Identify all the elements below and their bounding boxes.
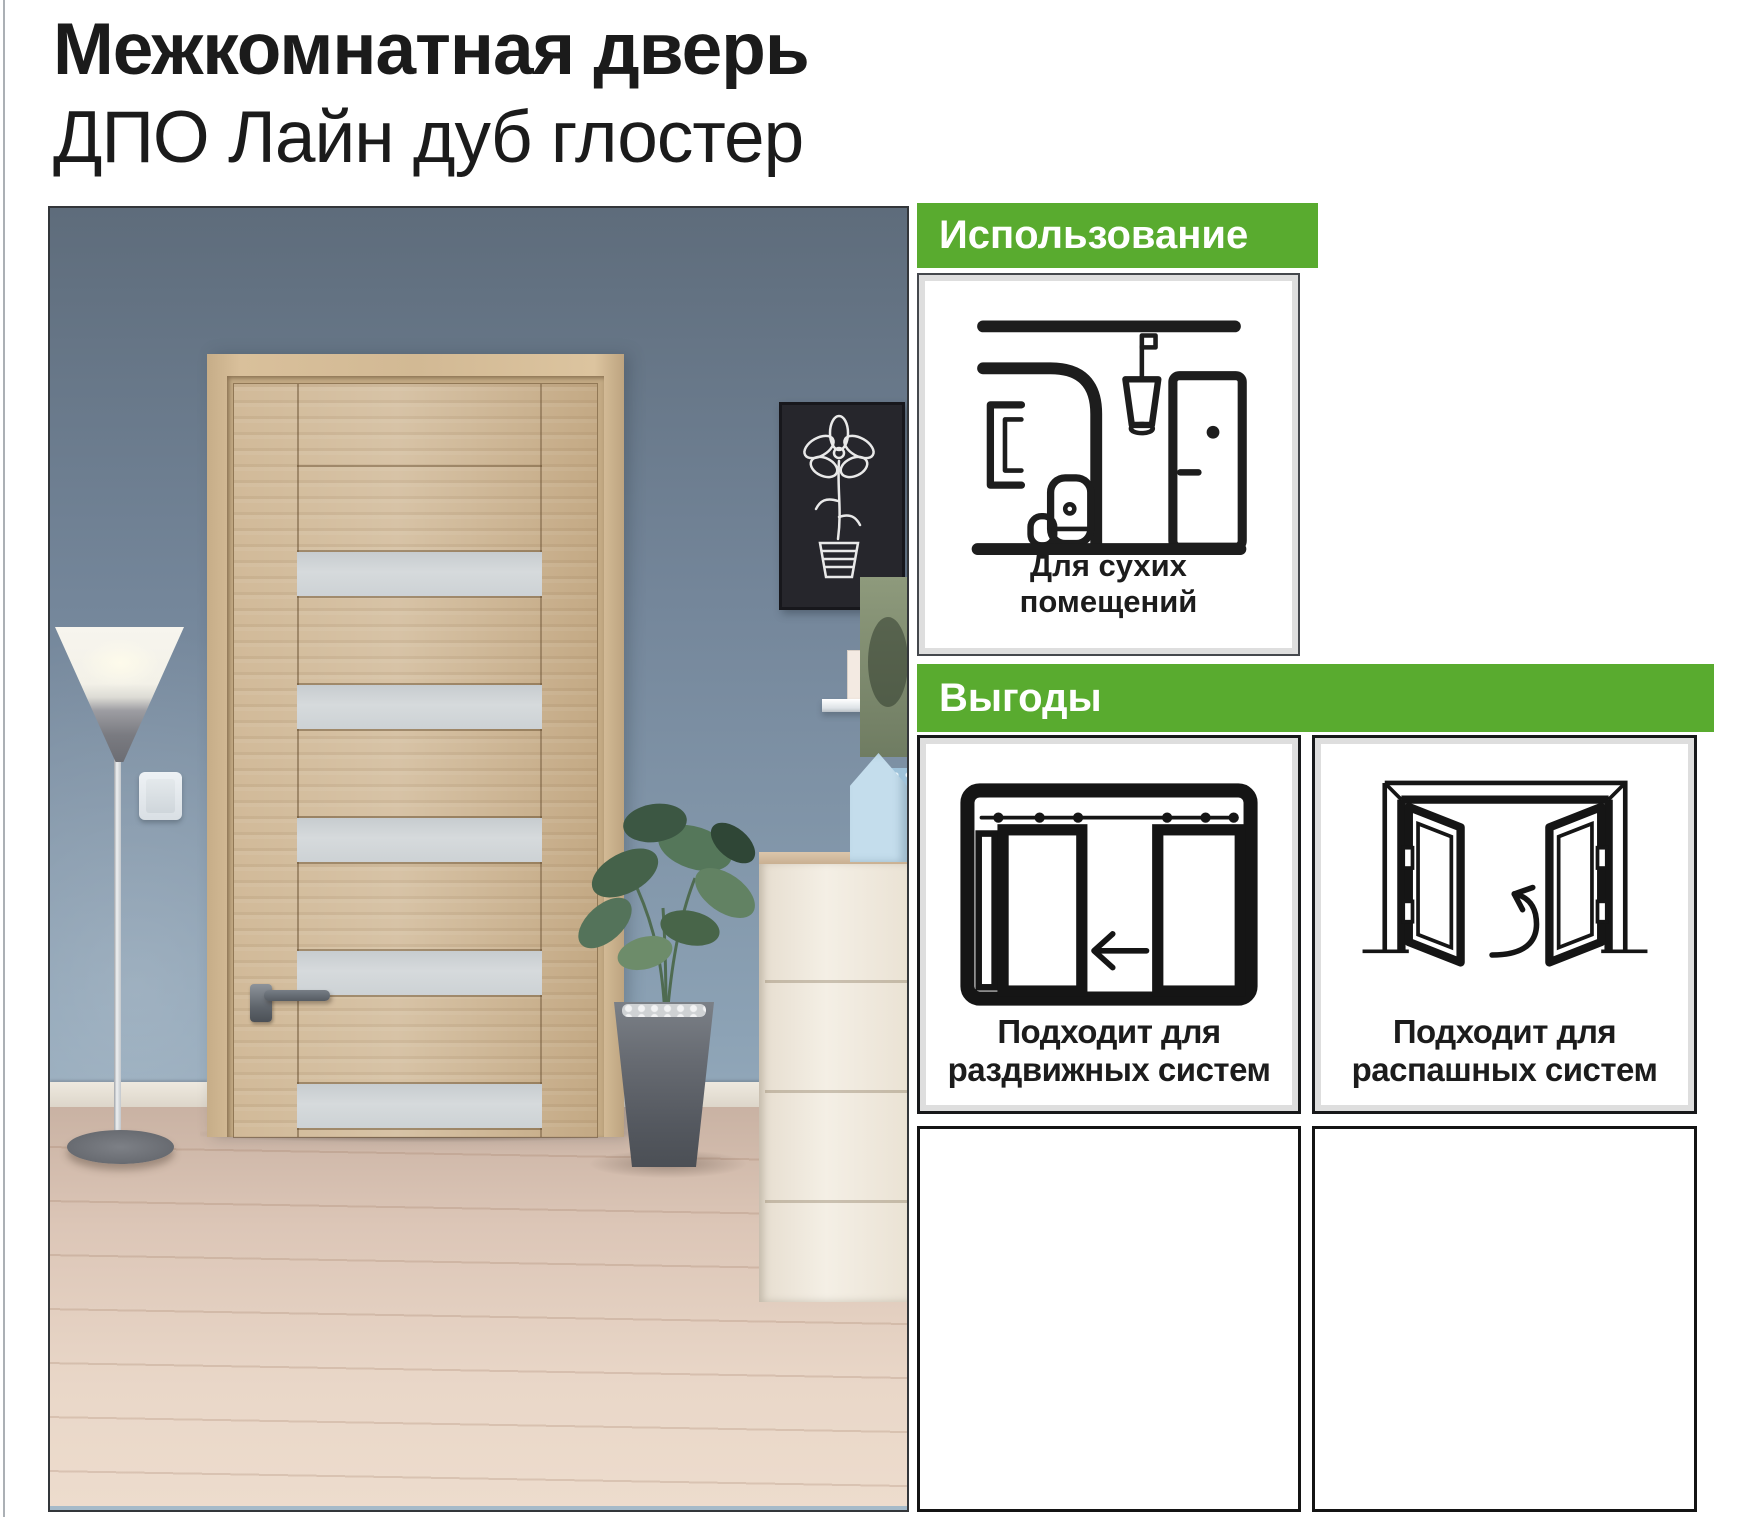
benefit-card-inner: Подходит для раздвижных систем <box>926 744 1292 1105</box>
drawer-line <box>765 1200 909 1203</box>
door-leaf <box>234 384 597 1137</box>
rail-joint <box>297 465 542 467</box>
wood-grain <box>234 384 597 1137</box>
usage-caption-line1: Для сухих <box>925 548 1292 584</box>
frosted-glass-strip <box>297 552 542 596</box>
drawer-line <box>765 1090 909 1093</box>
white-pebbles <box>622 1004 706 1017</box>
room-photo <box>48 206 909 1512</box>
usage-caption-line2: помещений <box>925 584 1292 620</box>
frosted-glass-strip <box>297 685 542 729</box>
sliding-caption-line1: Подходит для <box>926 1013 1292 1051</box>
potted-plant-leaves <box>545 768 780 1023</box>
usage-header-label: Использование <box>939 213 1248 258</box>
product-name: ДПО Лайн дуб глостер <box>53 100 803 177</box>
usage-section-header: Использование <box>917 203 1318 268</box>
lamp-glow <box>80 638 160 688</box>
page-title: Межкомнатная дверь <box>53 12 809 89</box>
product-poster: Межкомнатная дверь ДПО Лайн дуб глостер <box>0 0 1744 1517</box>
usage-card: Для сухих помещений <box>917 273 1300 656</box>
usage-caption: Для сухих помещений <box>925 548 1292 620</box>
door-handle <box>264 990 330 1001</box>
empty-spec-box-1 <box>917 1126 1301 1512</box>
benefits-header-label: Выгоды <box>939 676 1102 721</box>
floor-lamp-pole <box>114 758 121 1150</box>
empty-spec-box-2 <box>1312 1126 1697 1512</box>
swing-doors-system-icon <box>1357 770 1653 992</box>
benefits-section-header: Выгоды <box>917 664 1714 732</box>
benefit-card-sliding: Подходит для раздвижных систем <box>917 735 1301 1114</box>
drawer-line <box>765 980 909 983</box>
sliding-caption-line2: раздвижных систем <box>926 1051 1292 1089</box>
dry-rooms-interior-icon <box>963 299 1255 573</box>
skirting-board <box>50 1082 207 1107</box>
dresser <box>759 862 909 1302</box>
usage-card-inner: Для сухих помещений <box>925 281 1292 648</box>
light-switch <box>139 772 182 820</box>
floor-lamp-base <box>67 1130 174 1164</box>
benefit-card-swing: Подходит для распашных систем <box>1312 735 1697 1114</box>
sliding-doors-system-icon <box>959 782 1259 1007</box>
frosted-glass-strip <box>297 818 542 862</box>
stile-groove <box>297 384 299 1137</box>
page-edge-line <box>3 0 5 1517</box>
chalk-flower-doodle <box>782 405 896 601</box>
leaning-art-print <box>860 577 907 757</box>
frosted-glass-strip <box>297 1084 542 1128</box>
sliding-caption: Подходит для раздвижных систем <box>926 1013 1292 1089</box>
swing-caption-line2: распашных систем <box>1321 1051 1688 1089</box>
stile-groove <box>540 384 542 1137</box>
swing-caption-line1: Подходит для <box>1321 1013 1688 1051</box>
benefit-card-inner: Подходит для распашных систем <box>1321 744 1688 1105</box>
frosted-glass-strip <box>297 951 542 995</box>
swing-caption: Подходит для распашных систем <box>1321 1013 1688 1089</box>
